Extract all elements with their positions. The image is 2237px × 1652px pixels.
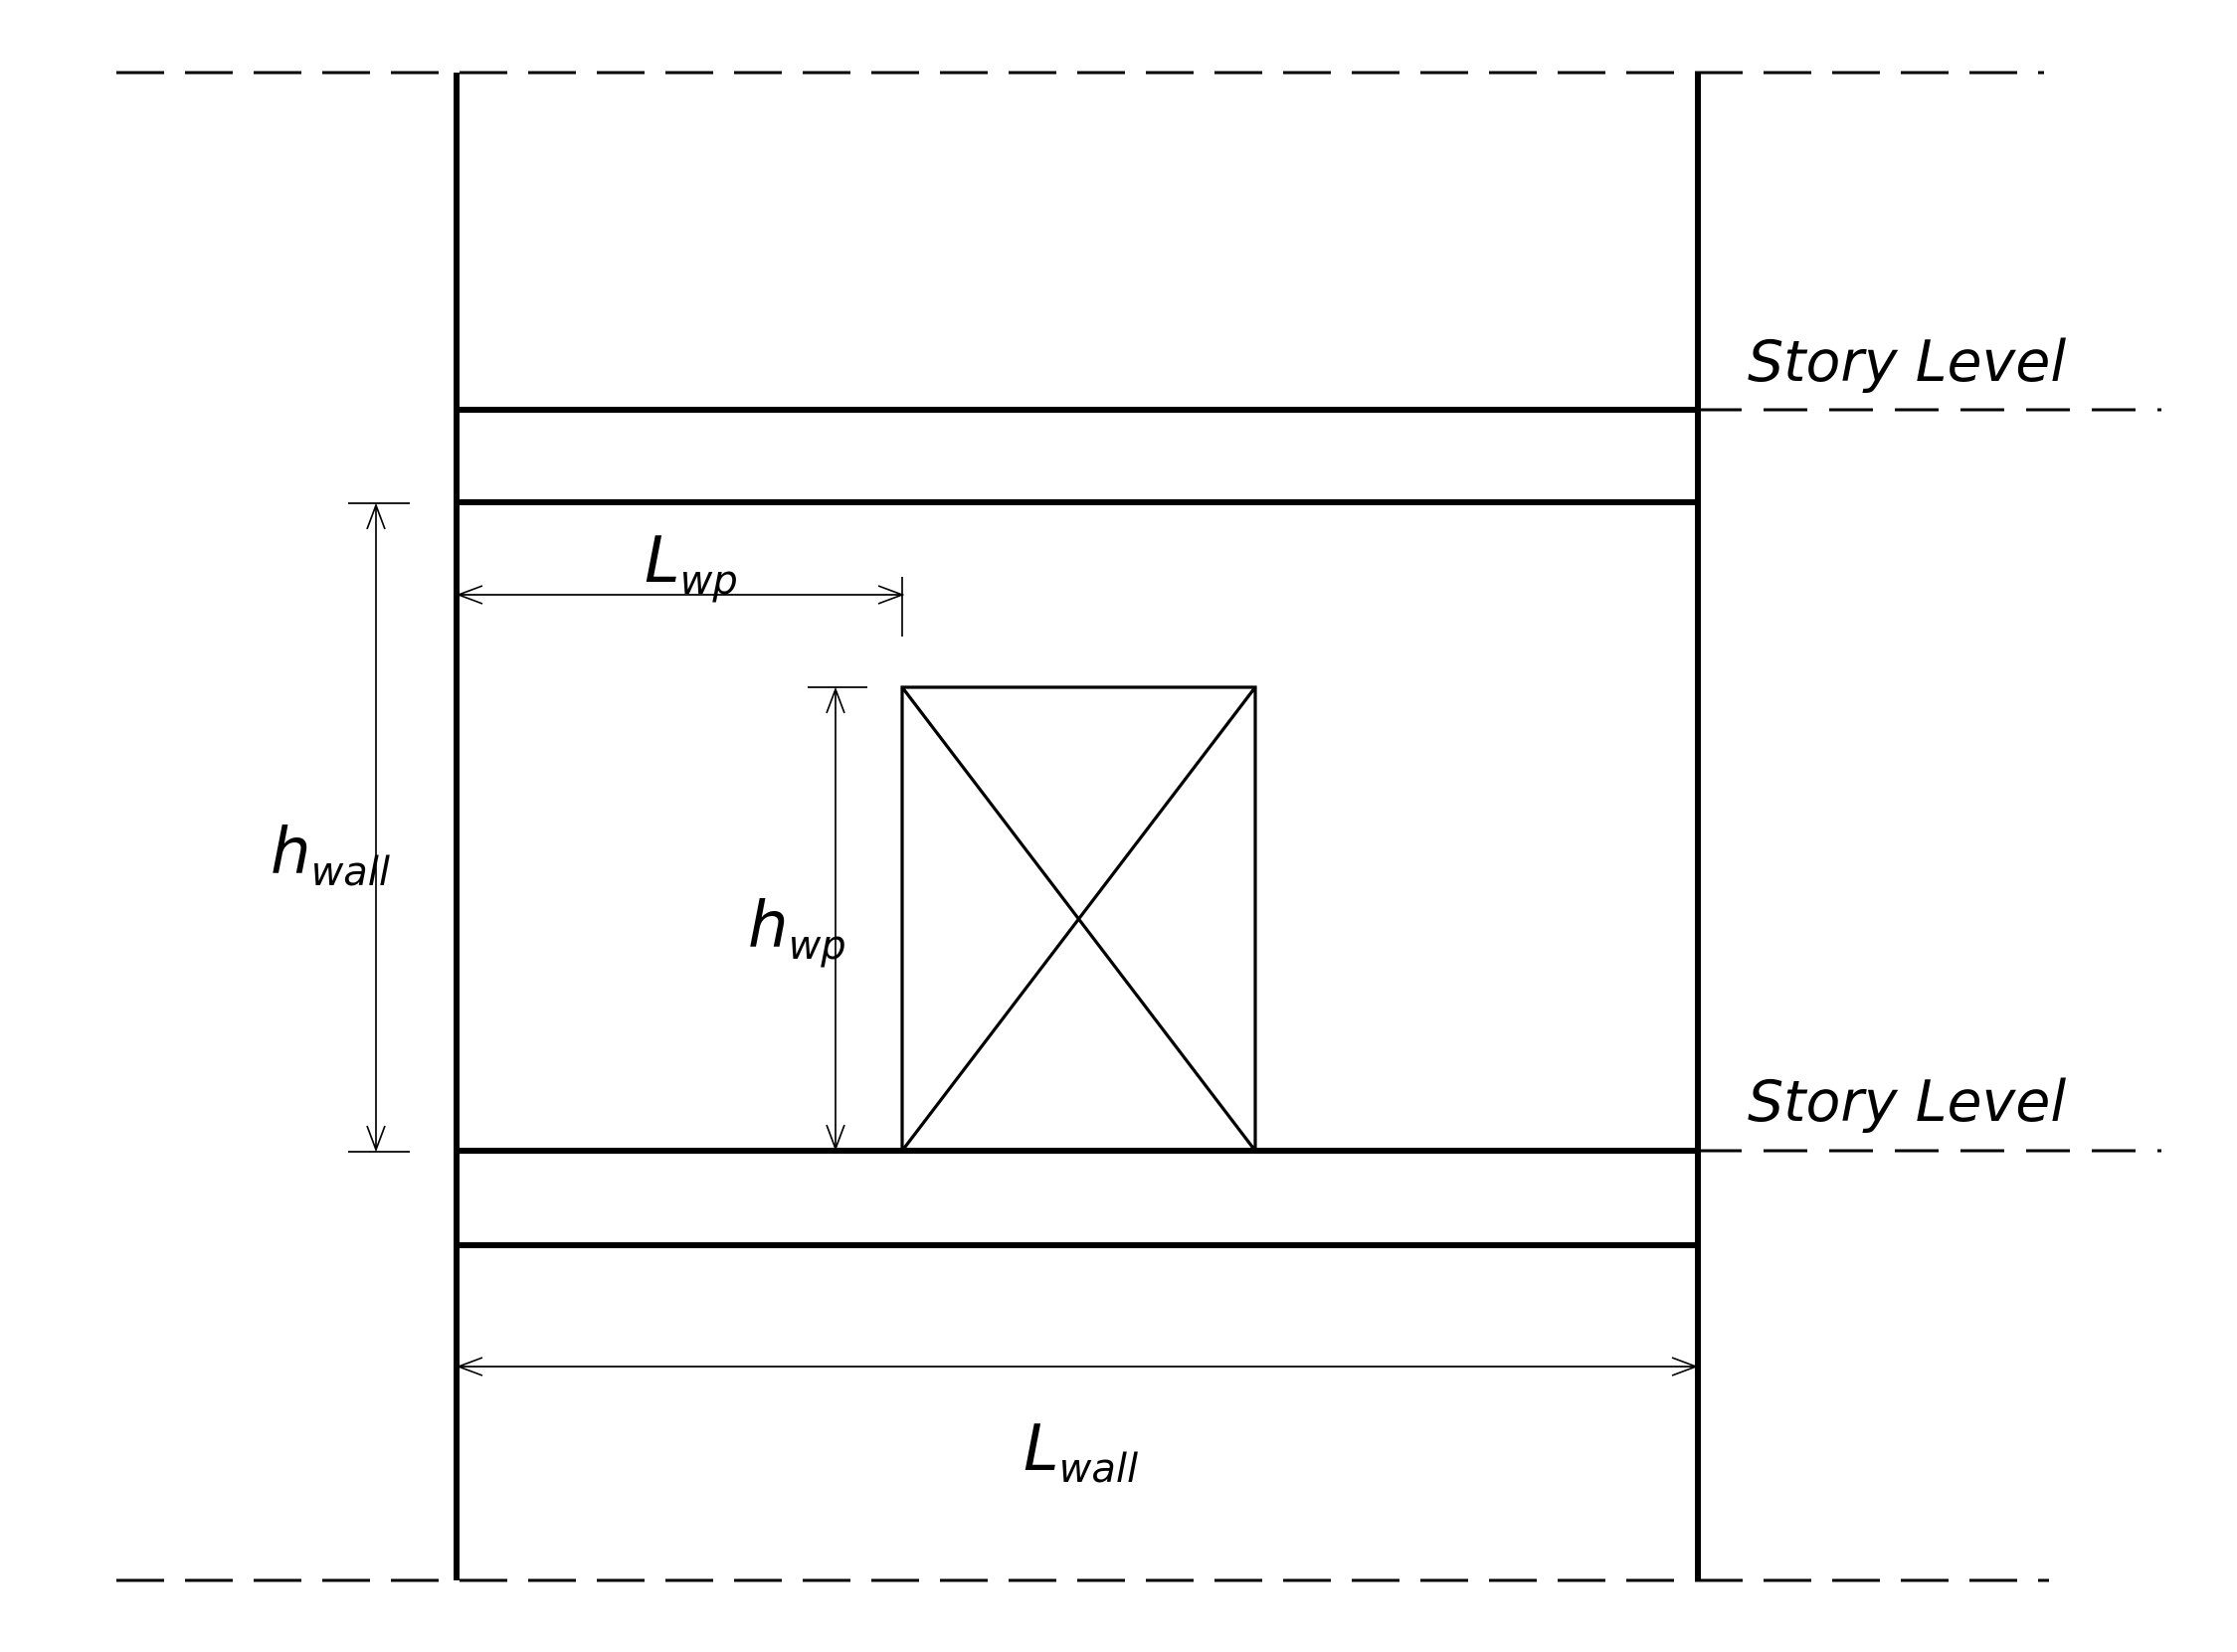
hwp-dimension: hwp xyxy=(748,687,867,1149)
lwp-dimension: Lwp xyxy=(459,524,902,637)
wall-pier-region xyxy=(902,687,1255,1151)
diagram-canvas: Lwp hwall hwp Lwall Story Level xyxy=(0,0,2237,1652)
story-level-label-lower: Story Level xyxy=(1748,1069,2066,1135)
lwall-dimension: Lwall xyxy=(459,1358,1696,1492)
lwp-label: Lwp xyxy=(645,524,738,604)
wall-elevation-diagram: Lwp hwall hwp Lwall Story Level xyxy=(0,0,2237,1652)
hwp-label: hwp xyxy=(748,889,846,969)
lwall-label: Lwall xyxy=(1024,1412,1138,1492)
hwall-label: hwall xyxy=(271,816,390,895)
story-level-label-upper: Story Level xyxy=(1748,329,2066,395)
hwall-dimension: hwall xyxy=(271,503,410,1152)
